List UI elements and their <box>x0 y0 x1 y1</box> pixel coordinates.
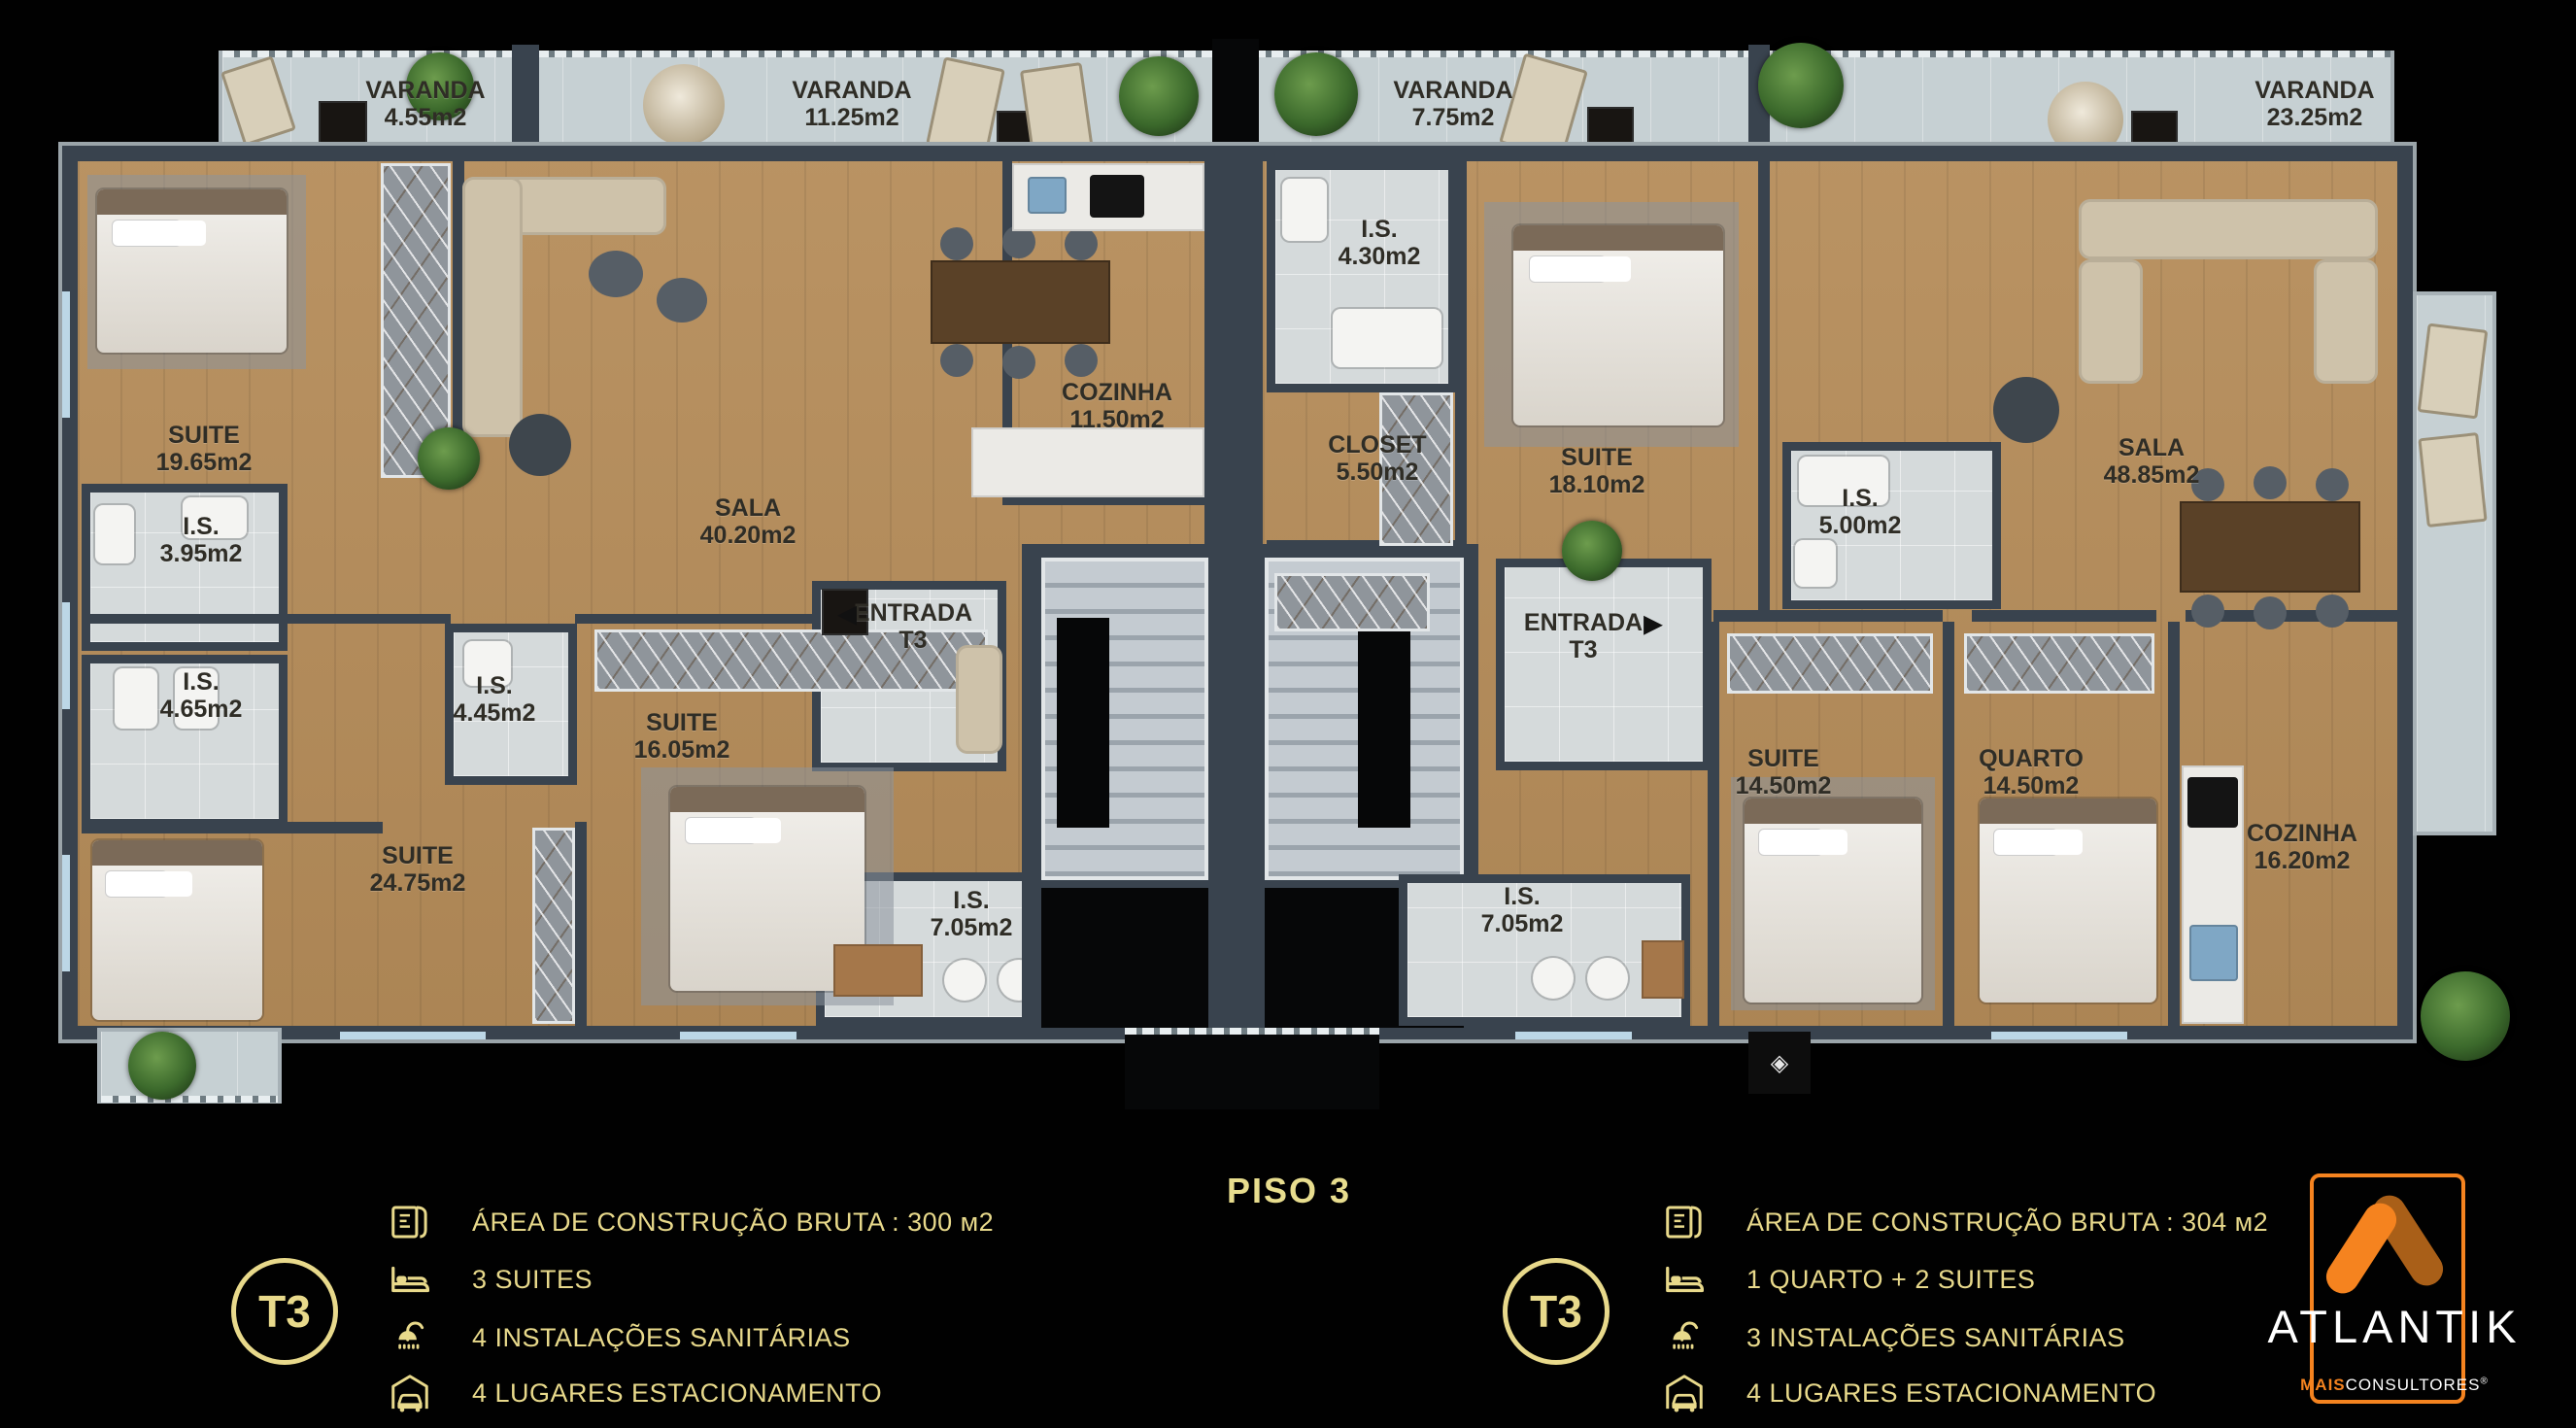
wall <box>1713 610 1943 622</box>
bed <box>1513 225 1723 425</box>
legend-text: 3 INSTALAÇÕES SANITÁRIAS <box>1746 1323 2125 1353</box>
room-label-is: I.S. 7.05m2 <box>931 887 1013 941</box>
room-area: 48.85m2 <box>2104 461 2200 489</box>
room-name: SUITE <box>1561 444 1633 471</box>
dining-chair <box>1065 227 1098 260</box>
legend-item: 4 LUGARES ESTACIONAMENTO <box>1659 1368 2156 1418</box>
room-area: 24.75m2 <box>370 869 466 897</box>
entry-arrow-icon: ▶ <box>1644 609 1663 639</box>
room-label-suite: SUITE 24.75m2 <box>370 842 466 897</box>
hanging-chair <box>643 64 725 146</box>
floor-plan-icon <box>385 1197 435 1247</box>
badge-label: T3 <box>258 1285 311 1338</box>
room-name: I.S. <box>183 668 220 696</box>
t3-badge-right: T3 <box>1503 1258 1610 1365</box>
car-garage-icon <box>1659 1368 1710 1418</box>
dining-chair <box>940 227 973 260</box>
room-name: I.S. <box>1361 216 1398 243</box>
room-name: SUITE <box>646 709 718 736</box>
wall <box>575 822 587 1028</box>
window <box>340 1032 486 1039</box>
legend-item: 1 QUARTO + 2 SUITES <box>1659 1254 2035 1305</box>
room-entrada-right <box>1496 559 1712 770</box>
room-name: I.S. <box>1842 485 1879 512</box>
wall <box>1943 622 1954 1026</box>
room-area: 4.45m2 <box>454 699 536 727</box>
room-label-suite: SUITE 14.50m2 <box>1736 745 1832 799</box>
legend-text: 1 QUARTO + 2 SUITES <box>1746 1265 2035 1295</box>
dining-chair <box>2316 595 2349 628</box>
entry-bench <box>956 645 1002 754</box>
room-label-is: I.S. 7.05m2 <box>1481 883 1564 937</box>
room-name: I.S. <box>183 513 220 540</box>
plant <box>128 1032 196 1100</box>
room-area: 14.50m2 <box>1983 772 2080 799</box>
room-area: 3.95m2 <box>160 540 243 567</box>
wall <box>1455 161 1467 550</box>
balcony-railing <box>101 1096 278 1103</box>
cooktop <box>2187 777 2238 828</box>
room-label-suite: SUITE 19.65m2 <box>156 422 253 476</box>
kitchen-sink <box>1028 177 1067 214</box>
sun-lounger <box>2418 323 2489 420</box>
cube-icon: ◈ <box>1748 1032 1811 1094</box>
t3-badge-left: T3 <box>231 1258 338 1365</box>
bidet <box>1587 958 1628 999</box>
sofa <box>2314 259 2378 384</box>
room-name: SUITE <box>382 842 454 869</box>
room-name: SALA <box>2118 434 2185 461</box>
room-area: 5.50m2 <box>1337 459 1419 486</box>
brand-sub-rest: CONSULTORES <box>2346 1376 2481 1394</box>
room-label-closet: CLOSET 5.50m2 <box>1328 431 1426 486</box>
dining-chair <box>1002 346 1035 379</box>
room-area: 40.20m2 <box>700 522 797 549</box>
bathroom-vanity <box>1642 940 1684 999</box>
bed <box>1980 799 2156 1003</box>
entry-arrow-icon: ◀ <box>837 599 857 629</box>
balcony-divider-wall <box>512 45 539 159</box>
atlantik-logo: ATLANTIK MAISCONSULTORES® <box>2263 1166 2525 1423</box>
dining-table <box>931 260 1110 344</box>
plant <box>1274 52 1358 136</box>
room-name: SUITE <box>168 422 240 449</box>
sun-lounger <box>1020 62 1094 159</box>
room-area: 19.65m2 <box>156 449 253 476</box>
room-label-is: I.S. 5.00m2 <box>1819 485 1902 539</box>
room-area: 11.25m2 <box>804 104 898 131</box>
brand-name: ATLANTIK <box>2267 1300 2521 1353</box>
wardrobe <box>1274 573 1430 631</box>
room-label-cozinha: COZINHA 11.50m2 <box>1062 379 1172 433</box>
plant <box>1562 521 1622 581</box>
round-rug <box>1993 377 2059 443</box>
room-label-quarto: QUARTO 14.50m2 <box>1979 745 2084 799</box>
room-label-is: I.S. 4.30m2 <box>1339 216 1421 270</box>
legend-text: 3 SUITES <box>472 1265 593 1295</box>
room-name: CLOSET <box>1328 431 1426 459</box>
brand-sub-bold: MAIS <box>2300 1376 2346 1394</box>
room-area: 18.10m2 <box>1549 471 1645 498</box>
sofa <box>2079 199 2378 259</box>
railing <box>1125 1028 1379 1035</box>
sofa <box>462 177 523 437</box>
room-area: 4.55m2 <box>385 104 467 131</box>
wardrobe <box>1964 633 2154 694</box>
legend-text: 4 LUGARES ESTACIONAMENTO <box>1746 1378 2156 1409</box>
window <box>680 1032 797 1039</box>
stair-well <box>1358 618 1410 828</box>
varanda-label: VARANDA 4.55m2 <box>365 77 485 131</box>
legend-text: 4 INSTALAÇÕES SANITÁRIAS <box>472 1323 851 1353</box>
room-area: 5.00m2 <box>1819 512 1902 539</box>
window <box>62 291 70 418</box>
room-name: VARANDA <box>2254 77 2374 104</box>
sofa <box>2079 259 2143 384</box>
legend-text: 4 LUGARES ESTACIONAMENTO <box>472 1378 882 1409</box>
room-name: COZINHA <box>2247 820 2357 847</box>
window <box>62 855 70 971</box>
room-label-suite: SUITE 18.10m2 <box>1549 444 1645 498</box>
wall <box>1972 610 2156 622</box>
wardrobe <box>1727 633 1933 694</box>
dining-chair <box>1065 344 1098 377</box>
dining-chair <box>2316 468 2349 501</box>
plant <box>2421 971 2510 1061</box>
room-label-entrada: ENTRADA T3 <box>1524 609 1643 663</box>
room-area: 7.05m2 <box>1481 910 1564 937</box>
bed <box>97 189 287 353</box>
plant <box>418 427 480 490</box>
shaft-void <box>1041 888 1208 1028</box>
toilet <box>1533 958 1574 999</box>
room-label-is: I.S. 4.65m2 <box>160 668 243 723</box>
shower-icon <box>1659 1312 1710 1363</box>
bed-icon <box>385 1254 435 1305</box>
legend-text: ÁREA DE CONSTRUÇÃO BRUTA : 300 м2 <box>472 1207 994 1238</box>
wall <box>1708 622 1719 1026</box>
room-name: COZINHA <box>1062 379 1172 406</box>
planter <box>321 103 365 152</box>
room-name: QUARTO <box>1979 745 2084 772</box>
dining-chair <box>940 344 973 377</box>
brand-subtitle: MAISCONSULTORES® <box>2300 1376 2489 1395</box>
kitchen-counter <box>971 427 1204 497</box>
badge-label: T3 <box>1530 1285 1582 1338</box>
varanda-label: VARANDA 11.25m2 <box>792 77 911 131</box>
legend-item: 3 INSTALAÇÕES SANITÁRIAS <box>1659 1312 2125 1363</box>
room-label-sala: SALA 48.85m2 <box>2104 434 2200 489</box>
room-area: T3 <box>1569 636 1597 663</box>
room-name: SUITE <box>1747 745 1819 772</box>
room-area: 4.30m2 <box>1339 243 1421 270</box>
page-title: PISO 3 <box>1227 1171 1351 1211</box>
legend-item: 4 INSTALAÇÕES SANITÁRIAS <box>385 1312 851 1363</box>
dining-chair <box>2254 466 2287 499</box>
room-label-is: I.S. 3.95m2 <box>160 513 243 567</box>
varanda-label: VARANDA 23.25m2 <box>2254 77 2374 131</box>
bed-icon <box>1659 1254 1710 1305</box>
window <box>1991 1032 2127 1039</box>
room-label-sala: SALA 40.20m2 <box>700 494 797 549</box>
armchair <box>657 278 707 323</box>
room-name: ENTRADA <box>1524 609 1643 636</box>
lower-shaft <box>1125 1028 1379 1109</box>
room-name: ENTRADA <box>854 599 972 627</box>
room-area: 7.75m2 <box>1412 104 1495 131</box>
legend-item: ÁREA DE CONSTRUÇÃO BRUTA : 300 м2 <box>385 1197 994 1247</box>
wall <box>82 614 451 624</box>
wall <box>82 822 383 833</box>
round-rug <box>509 414 571 476</box>
toilet <box>1795 540 1836 587</box>
plant <box>1758 43 1844 128</box>
cooktop <box>1090 175 1144 218</box>
bathroom-vanity <box>833 944 923 997</box>
plant <box>1119 56 1199 136</box>
car-garage-icon <box>385 1368 435 1418</box>
bed <box>92 840 262 1020</box>
room-area: T3 <box>898 627 927 654</box>
dining-chair <box>2191 595 2224 628</box>
varanda-label: VARANDA 7.75m2 <box>1393 77 1512 131</box>
bathtub <box>1333 309 1441 367</box>
bath-sink <box>1282 179 1327 241</box>
room-name: VARANDA <box>365 77 485 104</box>
dining-chair <box>2254 596 2287 629</box>
room-area: 14.50m2 <box>1736 772 1832 799</box>
room-area: 4.65m2 <box>160 696 243 723</box>
room-name: I.S. <box>1504 883 1541 910</box>
legend-item: 3 SUITES <box>385 1254 593 1305</box>
wall <box>1758 161 1770 610</box>
room-area: 23.25m2 <box>2267 104 2363 131</box>
room-area: 11.50m2 <box>1069 406 1164 433</box>
armchair <box>589 251 643 297</box>
room-name: I.S. <box>953 887 990 914</box>
room-label-entrada: ENTRADA T3 <box>854 599 972 654</box>
room-label-cozinha: COZINHA 16.20m2 <box>2247 820 2357 874</box>
room-name: VARANDA <box>792 77 911 104</box>
room-name: SALA <box>715 494 781 522</box>
bath-sink <box>95 505 134 563</box>
bed <box>1745 799 1921 1003</box>
shower-icon <box>385 1312 435 1363</box>
registered-mark: ® <box>2480 1376 2488 1386</box>
floor-plan-icon <box>1659 1197 1710 1247</box>
kitchen-sink <box>2189 925 2238 981</box>
window <box>62 602 70 709</box>
wall <box>2168 622 2180 1026</box>
room-area: 16.20m2 <box>2254 847 2351 874</box>
legend-item: ÁREA DE CONSTRUÇÃO BRUTA : 304 м2 <box>1659 1197 2268 1247</box>
room-label-is: I.S. 4.45m2 <box>454 672 536 727</box>
room-label-suite: SUITE 16.05m2 <box>634 709 730 764</box>
room-name: VARANDA <box>1393 77 1512 104</box>
room-area: 7.05m2 <box>931 914 1013 941</box>
stair-well <box>1057 618 1109 828</box>
floor-plan-page: VARANDA 4.55m2 VARANDA 11.25m2 VARANDA 7… <box>0 0 2576 1428</box>
dining-table <box>2180 501 2360 593</box>
wall <box>575 614 818 624</box>
legend-text: ÁREA DE CONSTRUÇÃO BRUTA : 304 м2 <box>1746 1207 2268 1238</box>
legend-item: 4 LUGARES ESTACIONAMENTO <box>385 1368 882 1418</box>
room-name: I.S. <box>476 672 513 699</box>
wardrobe <box>532 828 575 1024</box>
atlantik-a-icon <box>2335 1188 2432 1297</box>
sun-lounger <box>2418 432 2487 527</box>
toilet <box>944 960 985 1001</box>
room-area: 16.05m2 <box>634 736 730 764</box>
toilet <box>115 668 157 729</box>
window <box>1515 1032 1632 1039</box>
